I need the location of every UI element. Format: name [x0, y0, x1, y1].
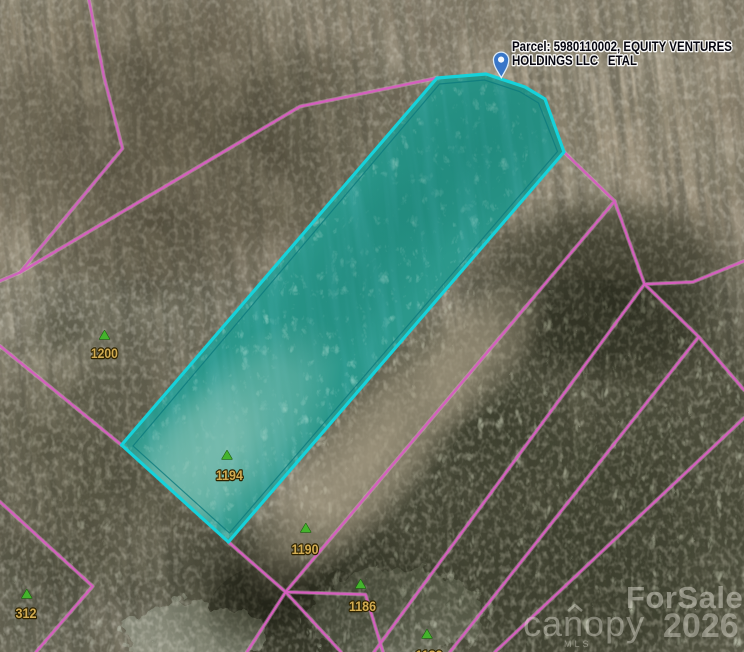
svg-text:1186: 1186 [349, 598, 376, 614]
svg-text:1190: 1190 [292, 541, 319, 557]
svg-text:1194: 1194 [216, 467, 243, 483]
svg-text:2026: 2026 [663, 607, 739, 645]
svg-text:MLS: MLS [564, 639, 592, 649]
svg-text:HOLDINGS LLC ETAL: HOLDINGS LLC ETAL [512, 53, 637, 68]
svg-text:Parcel: 5980110002, EQUITY VEN: Parcel: 5980110002, EQUITY VENTURES [512, 39, 732, 54]
svg-text:312: 312 [16, 605, 37, 621]
svg-text:1182: 1182 [416, 647, 443, 652]
svg-text:1200: 1200 [91, 345, 118, 361]
svg-text:canopy: canopy [523, 603, 645, 644]
